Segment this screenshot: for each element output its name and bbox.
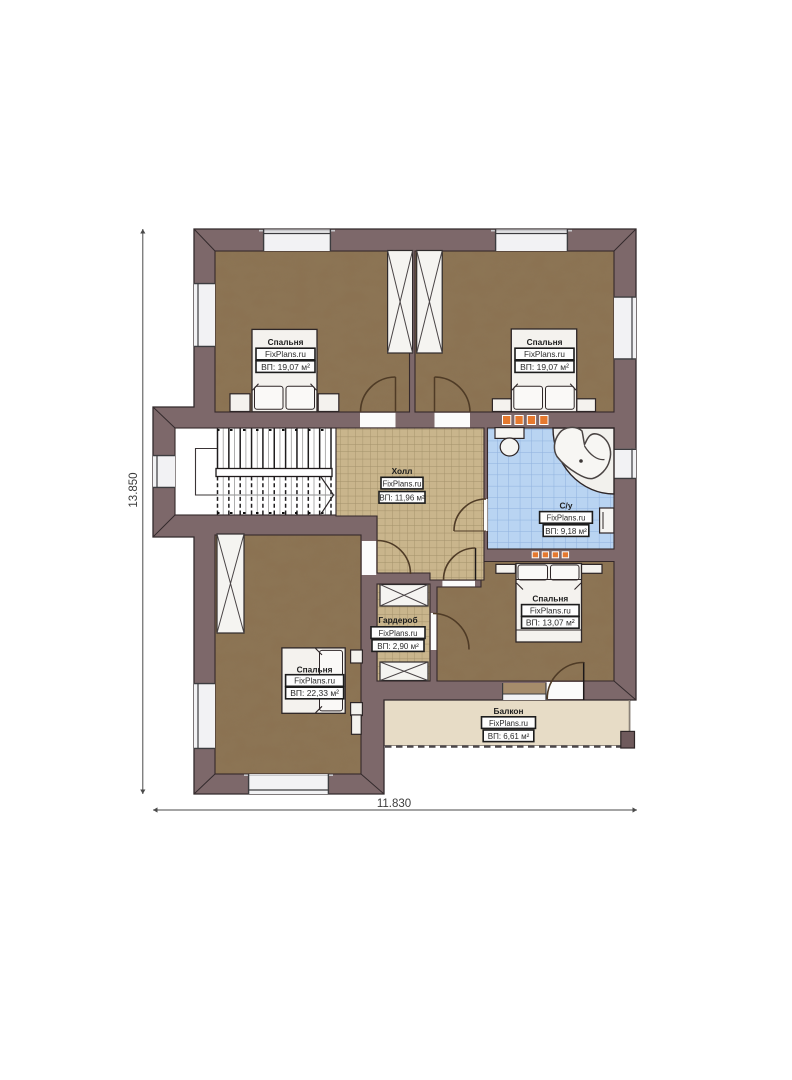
svg-text:Гардероб: Гардероб	[378, 615, 417, 625]
svg-text:FixPlans.ru: FixPlans.ru	[489, 719, 528, 728]
svg-text:ВП: 2,90 м²: ВП: 2,90 м²	[377, 642, 419, 651]
svg-text:FixPlans.ru: FixPlans.ru	[294, 677, 335, 686]
svg-text:ВП: 9,18 м²: ВП: 9,18 м²	[545, 527, 587, 536]
svg-text:Спальня: Спальня	[532, 594, 568, 604]
svg-text:ВП: 19,07 м²: ВП: 19,07 м²	[261, 362, 310, 372]
svg-text:FixPlans.ru: FixPlans.ru	[383, 479, 422, 488]
svg-text:FixPlans.ru: FixPlans.ru	[547, 514, 586, 523]
svg-text:13.850: 13.850	[128, 472, 140, 507]
svg-text:ВП: 11,96 м²: ВП: 11,96 м²	[379, 494, 425, 503]
svg-text:FixPlans.ru: FixPlans.ru	[379, 629, 418, 638]
svg-text:Холл: Холл	[392, 466, 413, 476]
svg-text:FixPlans.ru: FixPlans.ru	[265, 350, 306, 359]
svg-text:Спальня: Спальня	[527, 337, 563, 347]
svg-text:Балкон: Балкон	[494, 706, 524, 716]
svg-text:ВП: 19,07 м²: ВП: 19,07 м²	[520, 362, 569, 372]
svg-text:FixPlans.ru: FixPlans.ru	[530, 607, 571, 616]
svg-text:ВП: 22,33 м²: ВП: 22,33 м²	[290, 688, 339, 698]
svg-text:11.830: 11.830	[377, 798, 411, 810]
svg-text:ВП: 13,07 м²: ВП: 13,07 м²	[526, 618, 575, 628]
svg-text:Спальня: Спальня	[297, 665, 333, 675]
svg-text:Спальня: Спальня	[268, 337, 304, 347]
svg-text:С/у: С/у	[560, 501, 573, 511]
svg-text:ВП: 6,61 м²: ВП: 6,61 м²	[488, 732, 530, 741]
svg-text:FixPlans.ru: FixPlans.ru	[524, 350, 565, 359]
